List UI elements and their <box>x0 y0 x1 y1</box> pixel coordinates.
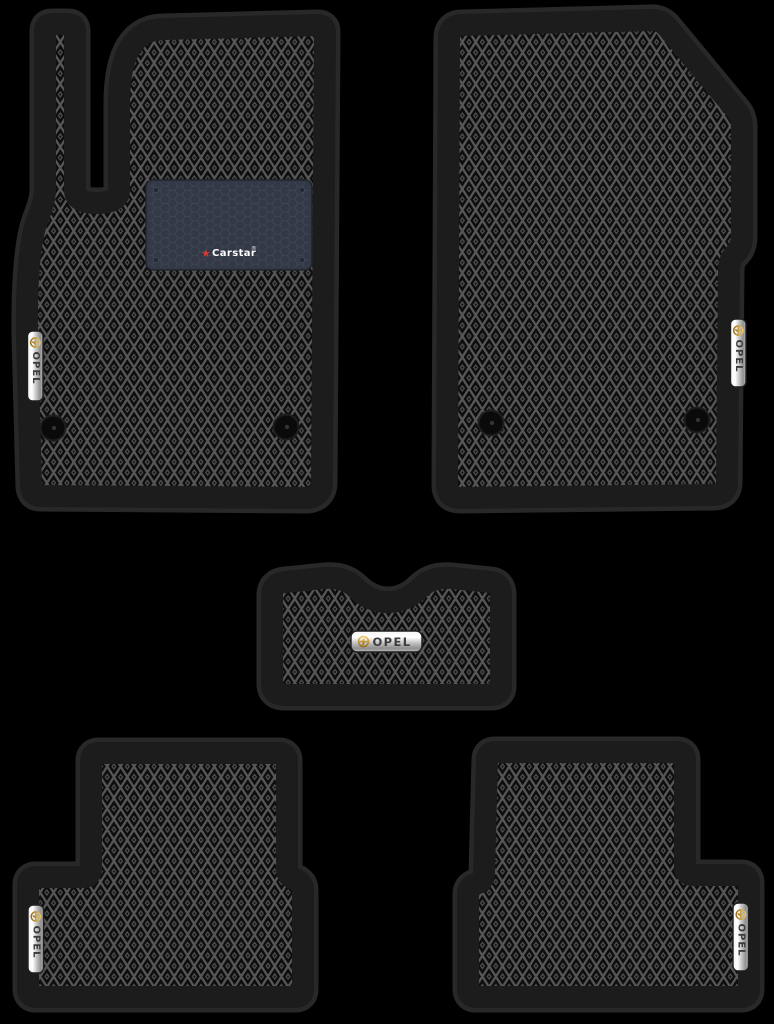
pad-rivet <box>299 187 304 192</box>
rear-right-mat: OPEL <box>468 752 749 997</box>
fastener-pin <box>285 425 289 429</box>
rear-left-mat: OPEL <box>28 753 303 997</box>
opel-badge-label: OPEL <box>735 924 746 957</box>
mat-set-illustration: ★ Carstar ® OPEL OPEL <box>0 0 774 1024</box>
fastener-pin <box>696 418 700 422</box>
carstar-star-icon: ★ <box>201 247 211 260</box>
center-tunnel-mat: OPEL <box>272 578 501 695</box>
opel-badge: OPEL <box>733 903 749 971</box>
opel-badge-label: OPEL <box>30 926 41 959</box>
product-photo: ★ Carstar ® OPEL OPEL <box>0 0 774 1024</box>
fastener-pin <box>490 421 494 425</box>
heel-pad: ★ Carstar ® <box>146 180 312 270</box>
brand-label: Carstar <box>212 248 256 259</box>
registered-mark: ® <box>251 245 257 252</box>
opel-badge-label: OPEL <box>30 352 41 385</box>
opel-badge: OPEL <box>731 319 747 387</box>
pad-rivet <box>299 257 304 262</box>
front-driver-mat: ★ Carstar ® OPEL <box>27 24 325 498</box>
pad-rivet <box>153 187 158 192</box>
mat-surface <box>28 753 303 997</box>
opel-badge-label: OPEL <box>733 340 744 373</box>
opel-badge-label: OPEL <box>373 635 412 649</box>
mat-surface <box>468 752 749 997</box>
pad-rivet <box>153 257 158 262</box>
front-passenger-mat: OPEL <box>447 20 746 498</box>
opel-badge: OPEL <box>28 905 44 973</box>
opel-badge: OPEL <box>351 631 422 652</box>
fastener-pin <box>52 426 56 430</box>
opel-badge: OPEL <box>28 331 44 401</box>
